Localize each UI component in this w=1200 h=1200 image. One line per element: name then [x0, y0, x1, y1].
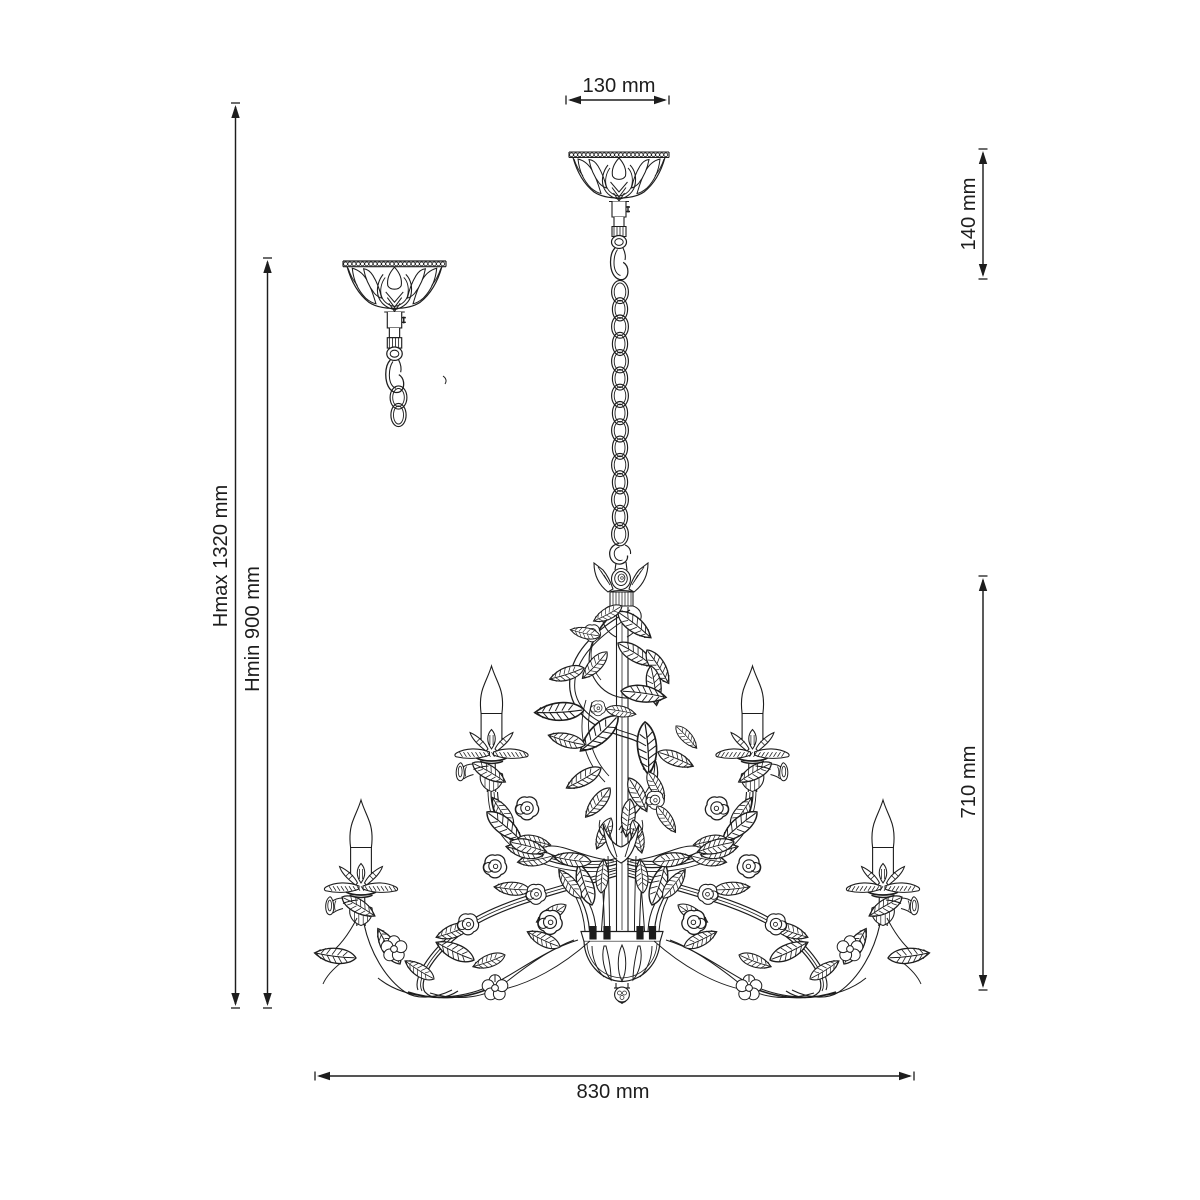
svg-text:130 mm: 130 mm: [583, 75, 656, 97]
svg-text:Hmin 900 mm: Hmin 900 mm: [242, 566, 264, 692]
svg-text:Hmax 1320 mm: Hmax 1320 mm: [210, 485, 232, 627]
svg-text:710 mm: 710 mm: [958, 746, 980, 819]
svg-text:140 mm: 140 mm: [958, 178, 980, 251]
svg-text:830 mm: 830 mm: [577, 1081, 650, 1103]
